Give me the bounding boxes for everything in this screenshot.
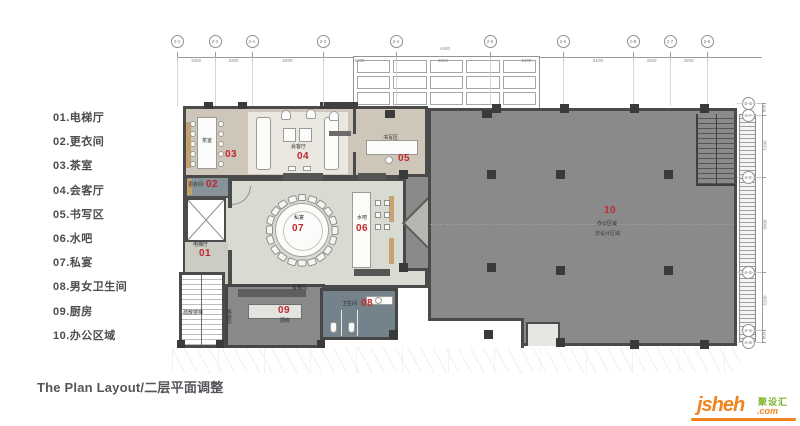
floor-plan: 2-12-22-A2-32-42-52-62-B2-72-83300320063… <box>0 0 800 426</box>
bar-stool <box>375 224 381 230</box>
structural-column <box>630 340 639 349</box>
room-name-label: 电梯厅 <box>193 241 208 248</box>
sink-bowl <box>375 297 382 304</box>
grid-extension-line <box>737 272 762 273</box>
toilet <box>348 322 355 333</box>
toilet <box>330 322 337 333</box>
room-number-label: 02 <box>206 179 218 190</box>
plan-text-label: 备餐间 <box>292 284 307 291</box>
structural-column <box>204 102 213 109</box>
structural-column <box>177 340 185 348</box>
grid-bubble: 2-7 <box>664 35 677 48</box>
structural-column <box>630 104 639 113</box>
grid-extension-line <box>323 57 324 106</box>
grid-bubble: 2-A <box>246 35 259 48</box>
structural-column <box>389 330 398 339</box>
room-number-label: 01 <box>199 248 211 259</box>
office-entry-niche <box>526 322 560 346</box>
tea-chair <box>218 141 224 147</box>
skylight-cell <box>466 76 499 89</box>
skylight-cell <box>393 92 426 105</box>
tea-chair <box>218 151 224 157</box>
structural-column <box>216 340 224 348</box>
ottoman <box>288 166 296 171</box>
skylight-cell <box>466 60 499 73</box>
dim-value: 5100 <box>763 295 768 305</box>
coffee-table <box>283 128 296 142</box>
stall-partition <box>341 310 342 336</box>
armchair <box>281 110 291 120</box>
media-wall <box>283 173 323 180</box>
bar-wood-strip <box>389 238 394 264</box>
logo-word: jsheh <box>697 394 744 417</box>
structural-column <box>556 170 565 179</box>
structural-column <box>556 338 565 347</box>
dim-value: 6400 <box>355 58 365 63</box>
elevator-cross-icon <box>188 200 224 240</box>
skylight-grid <box>357 60 536 105</box>
banquet-chair <box>266 226 273 235</box>
tea-chair <box>190 121 196 127</box>
room-name-label: 办公区域 <box>597 220 617 227</box>
hall-wall-seg <box>228 250 232 288</box>
dim-value: 8200 <box>438 58 448 63</box>
grid-bubble: 2-1 <box>171 35 184 48</box>
structural-column <box>487 263 496 272</box>
kitchen-island <box>248 304 302 319</box>
tea-chair <box>190 131 196 137</box>
room-name-label: 水吧 <box>357 214 367 221</box>
room-number-label: 03 <box>225 149 237 160</box>
dim-value: 8000 <box>763 219 768 229</box>
dim-value: 800 <box>761 105 766 113</box>
console-table <box>329 131 351 136</box>
skylight-cell <box>357 76 390 89</box>
grid-bubble: 2-4 <box>390 35 403 48</box>
office-area <box>428 108 737 346</box>
underlay-hatch <box>172 347 742 373</box>
banquet-chair <box>298 260 307 267</box>
room-number-label: 08 <box>361 298 373 309</box>
skylight-cell <box>393 76 426 89</box>
bar-stool <box>375 212 381 218</box>
room-number-label: 05 <box>398 153 410 164</box>
armchair <box>329 111 339 121</box>
tea-chair <box>218 131 224 137</box>
armchair <box>306 109 316 119</box>
grid-extension-line <box>177 57 178 106</box>
tea-chair <box>218 121 224 127</box>
tea-chair <box>218 161 224 167</box>
coffee-table <box>299 128 312 142</box>
room-name-label: 茶室 <box>202 137 212 144</box>
room-name-label: 卫生间 <box>342 300 357 307</box>
bar-wood-strip <box>389 196 394 222</box>
grid-bubble: 2-2 <box>209 35 222 48</box>
grid-extension-line <box>670 57 671 106</box>
office-stair <box>696 114 736 186</box>
writing-desk <box>366 140 418 155</box>
room-name-label: 会客厅 <box>291 143 306 150</box>
bar-stool <box>384 200 390 206</box>
media-wall <box>354 269 390 276</box>
louver-strip <box>739 114 756 342</box>
room-name-label: 私宴 <box>294 214 304 221</box>
plan-text-label: 疏散楼梯 <box>183 309 203 316</box>
plan-text-label: 楼梯间 <box>225 309 232 324</box>
room-number-label: 06 <box>356 223 368 234</box>
room-name-label: 厨房 <box>280 317 290 324</box>
dim-value: 6300 <box>283 58 293 63</box>
wing-wall-seg <box>353 152 356 178</box>
grid-extension-line <box>737 177 762 178</box>
banquet-chair <box>298 194 307 201</box>
grid-extension-line <box>215 57 216 106</box>
office-cutout <box>428 318 524 348</box>
stall-partition <box>357 310 358 336</box>
logo-cn-text: 聚设汇 <box>758 395 788 408</box>
desk-chair <box>385 156 393 164</box>
room-name-label: 更衣间 <box>188 181 203 188</box>
dim-value: 6400 <box>522 58 532 63</box>
dim-value: 3200 <box>684 58 694 63</box>
structural-column <box>700 104 709 113</box>
structural-column <box>560 104 569 113</box>
structural-column <box>385 110 395 118</box>
floor-plan-sheet: 01.电梯厅02.更衣间03.茶室04.会客厅05.书写区06.水吧07.私宴0… <box>0 0 800 426</box>
stair-divider <box>716 114 717 184</box>
banquet-chair <box>332 226 339 235</box>
structural-column <box>556 266 565 275</box>
dim-value: 3200 <box>647 58 657 63</box>
structural-column <box>399 263 408 272</box>
room-number-label: 10 <box>604 205 616 216</box>
wing-wall-seg <box>353 108 356 134</box>
elevator-shaft <box>186 198 226 242</box>
structural-column <box>487 170 496 179</box>
structural-column <box>238 102 247 109</box>
skylight-cell <box>503 76 536 89</box>
grid-bubble: 2-8 <box>701 35 714 48</box>
structural-column <box>492 104 501 113</box>
tea-chair <box>190 161 196 167</box>
logo-underline-bar <box>691 418 796 421</box>
tea-chair <box>190 151 196 157</box>
sofa-right <box>324 117 339 170</box>
skylight-cell <box>357 92 390 105</box>
structural-column <box>399 170 408 179</box>
structural-column <box>484 330 493 339</box>
structural-column <box>482 110 492 118</box>
grid-extension-line <box>396 57 397 106</box>
skylight-cell <box>393 60 426 73</box>
office-ref-line <box>430 224 734 225</box>
dim-value: 6100 <box>593 58 603 63</box>
skylight-cell <box>430 76 463 89</box>
dim-value: 3200 <box>229 58 239 63</box>
grid-extension-line <box>707 57 708 106</box>
room-sub-label: 非设计区域 <box>595 230 620 237</box>
sheet-title: The Plan Layout/二层平面调整 <box>37 377 223 396</box>
dim-total-value: 4400 <box>440 46 450 51</box>
ottoman <box>303 166 311 171</box>
grid-extension-line <box>737 342 762 343</box>
room-name-label: 书写区 <box>383 134 398 141</box>
grid-extension-line <box>490 57 491 106</box>
grid-extension-line <box>737 103 762 104</box>
skylight-cell <box>430 92 463 105</box>
structural-column <box>317 340 325 348</box>
structural-column <box>664 170 673 179</box>
dim-value: 5100 <box>763 140 768 150</box>
skylight-cell <box>503 92 536 105</box>
dim-value: 3300 <box>191 58 201 63</box>
grid-bubble: 2-3 <box>317 35 330 48</box>
bar-stool <box>384 212 390 218</box>
grid-extension-line <box>633 57 634 106</box>
grid-bubble: 2-5 <box>484 35 497 48</box>
bar-stool <box>384 224 390 230</box>
tea-chair <box>190 141 196 147</box>
grid-extension-line <box>737 330 762 331</box>
structural-column <box>664 266 673 275</box>
structural-column <box>700 340 709 349</box>
bar-stool <box>375 200 381 206</box>
grid-extension-line <box>563 57 564 106</box>
room-number-label: 04 <box>297 151 309 162</box>
room-number-label: 09 <box>278 305 290 316</box>
sofa-left <box>256 117 271 170</box>
dim-value: 800 <box>761 332 766 340</box>
grid-extension-line <box>737 115 762 116</box>
grid-bubble: 2-B <box>627 35 640 48</box>
room-number-label: 07 <box>292 223 304 234</box>
grid-bubble: 2-6 <box>557 35 570 48</box>
grid-extension-line <box>252 57 253 106</box>
media-wall <box>358 173 386 180</box>
